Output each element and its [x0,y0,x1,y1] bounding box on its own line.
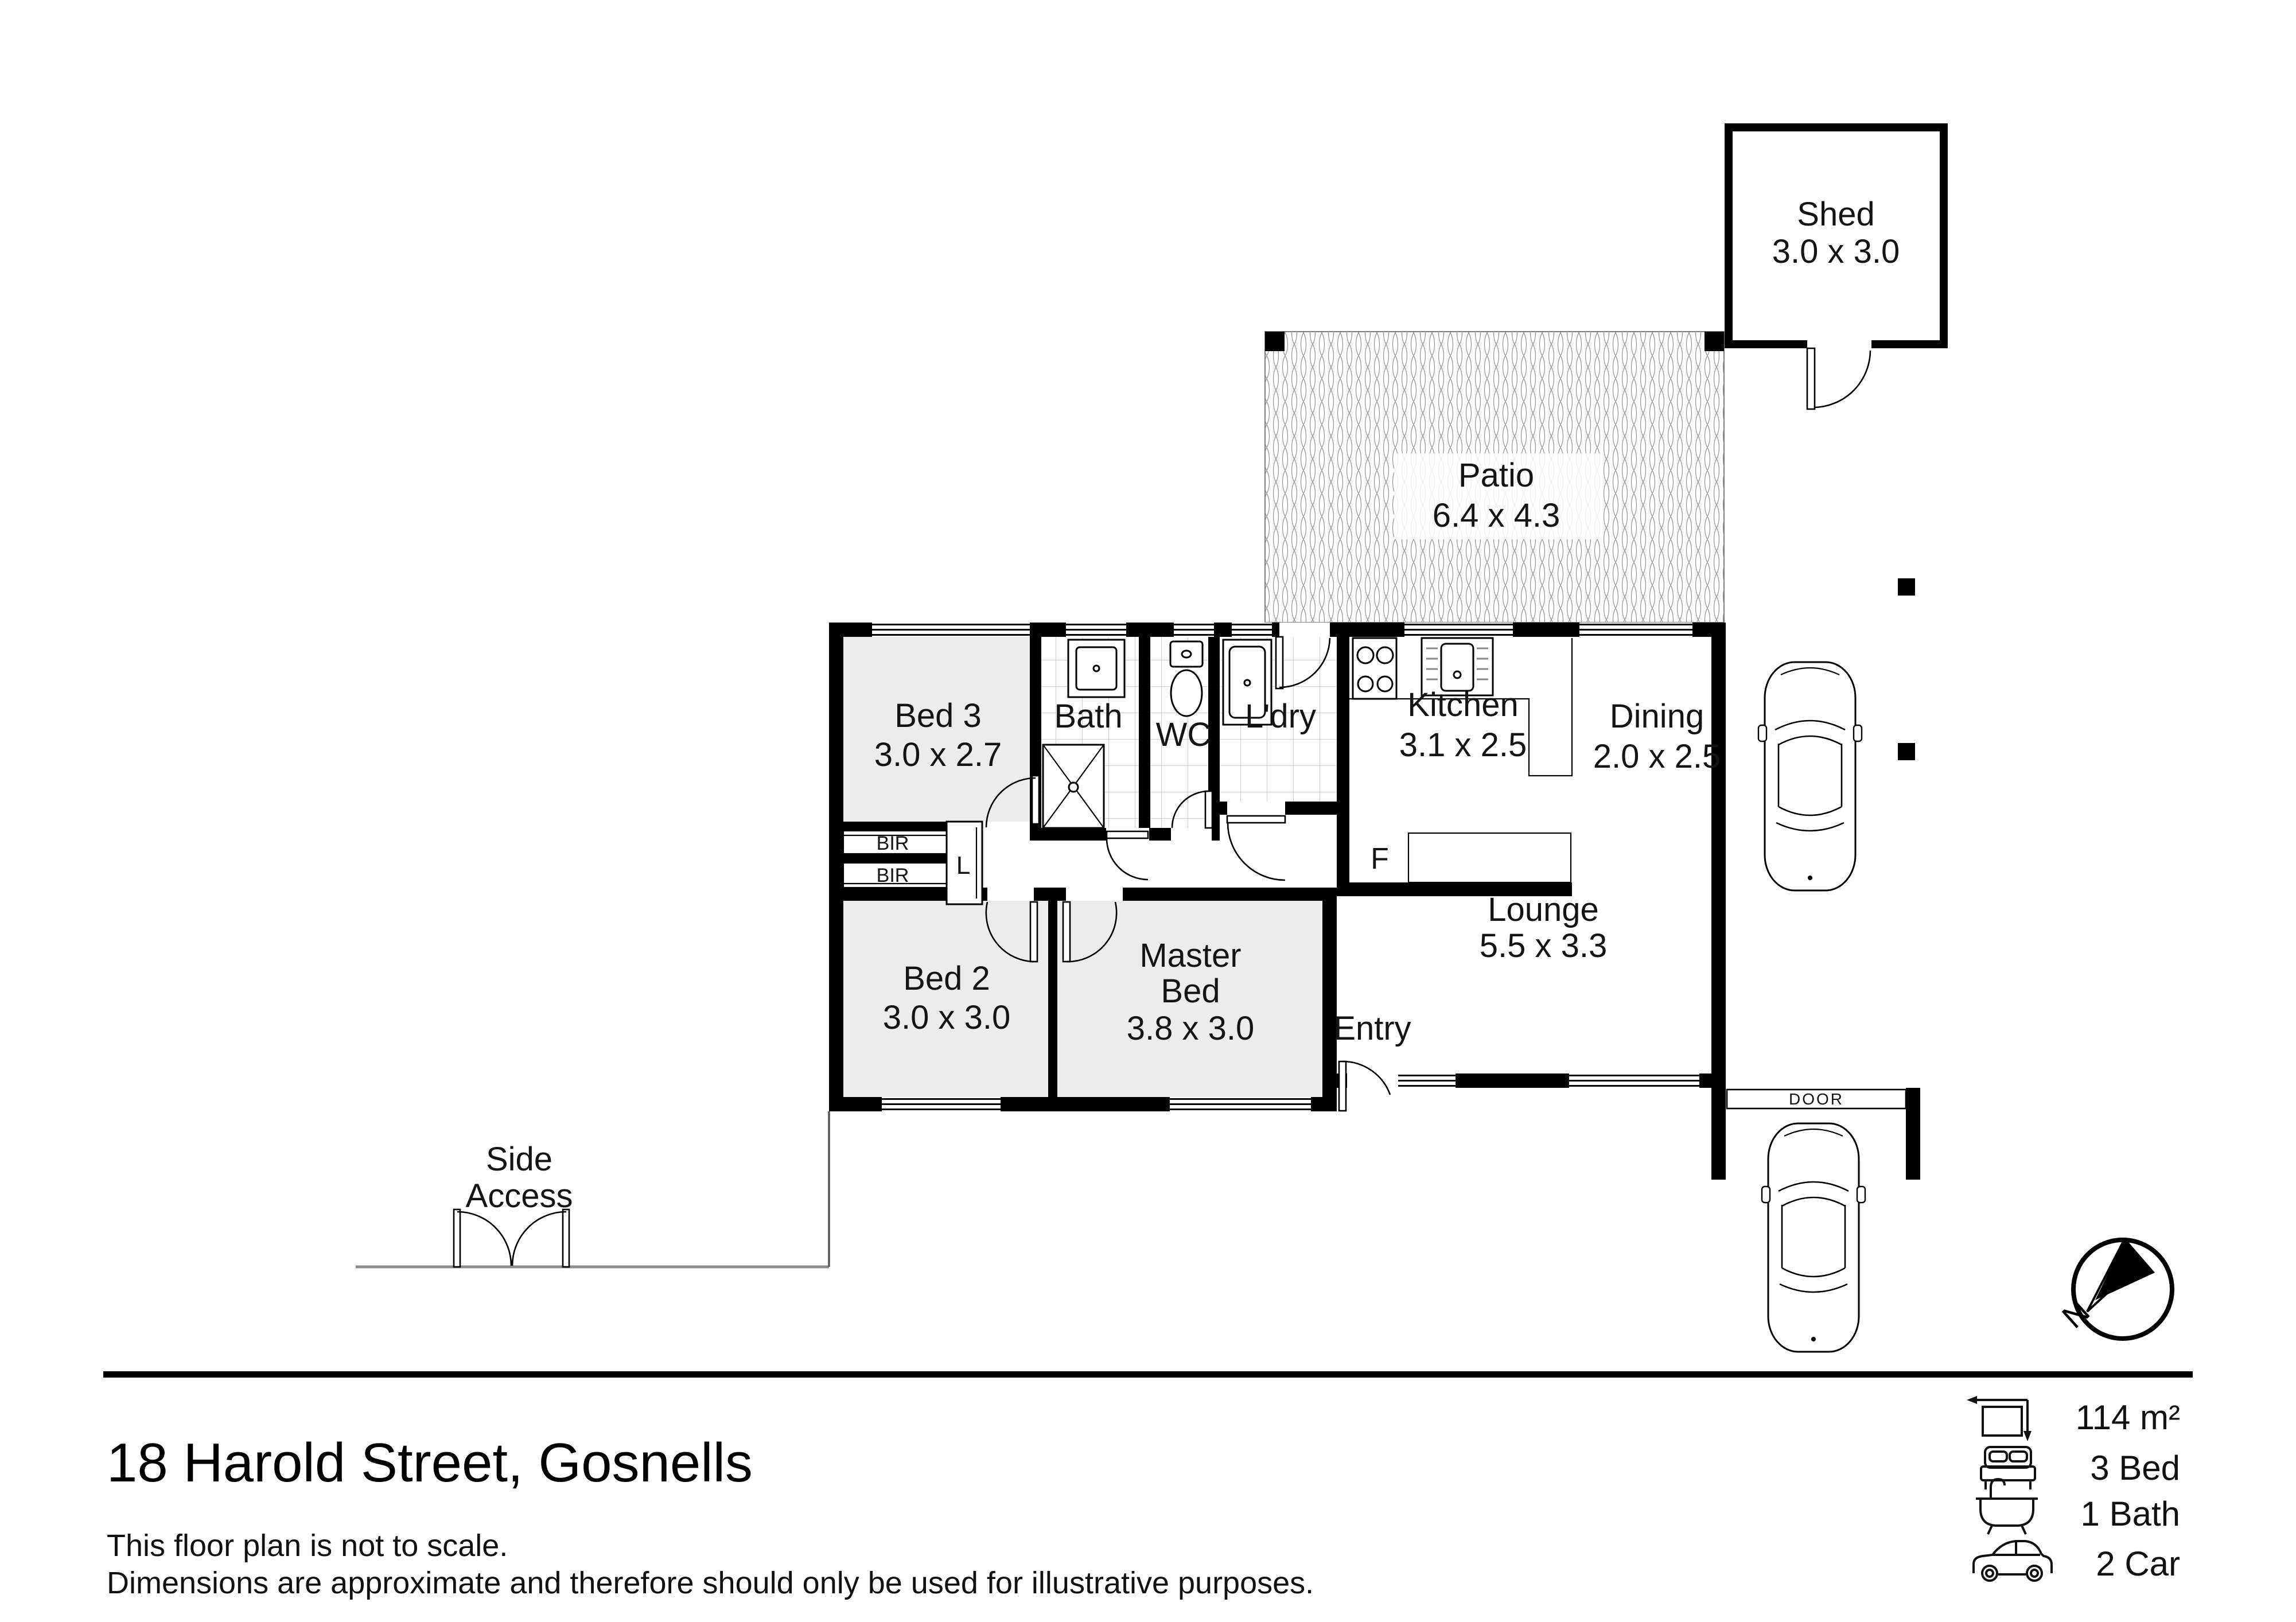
site-boundary [356,1111,829,1267]
carport-post [1898,743,1915,760]
kitchen-label: Kitchen [1407,686,1518,724]
car-top [1758,662,1862,890]
fridge-label: F [1371,842,1389,876]
patio-dims: 6.4 x 4.3 [1433,497,1560,534]
kitchen-dims: 3.1 x 2.5 [1399,726,1527,764]
bed3-label: Bed 3 [894,697,982,734]
stat-bath: 1 Bath [1976,1479,2180,1534]
patio-post [1705,332,1724,351]
bed3-dims: 3.0 x 2.7 [874,736,1002,773]
bed2-label: Bed 2 [903,960,990,997]
disclaimer-line1: This floor plan is not to scale. [107,1528,508,1563]
car-icon [1974,1541,2052,1581]
footer-rule [103,1371,2193,1378]
shed-label: Shed [1797,196,1874,233]
page-title: 18 Harold Street, Gosnells [107,1432,753,1493]
bir1-label: BIR [877,833,909,854]
car-bottom [1762,1123,1865,1352]
stat-bed: 3 Bed [1981,1447,2180,1489]
stat-car-label: 2 Car [2096,1545,2180,1583]
stat-bed-label: 3 Bed [2090,1449,2180,1487]
shed: Shed 3.0 x 3.0 [1725,123,1948,409]
toilet [1171,670,1202,716]
patio-label: Patio [1458,457,1534,494]
wc-fixtures [1170,641,1203,716]
bed-icon [1981,1447,2035,1489]
laundry-label: L'dry [1245,698,1316,735]
compass-icon: N [2055,1238,2172,1339]
side-access-label-line2: Access [466,1177,573,1215]
wc-label: WC [1156,716,1212,753]
lounge-label: Lounge [1488,891,1599,928]
carport-post [1898,578,1915,596]
bath-label: Bath [1054,698,1122,735]
stat-area: 114 m² [1967,1396,2180,1441]
garage-door-label: DOOR [1789,1090,1844,1108]
master-dims: 3.8 x 3.0 [1127,1010,1254,1047]
dining-label: Dining [1610,698,1704,735]
kitchen-bench [1408,833,1571,882]
floorplan-canvas: Side Access Shed 3.0 x 3.0 Patio 6.4 x 4… [0,0,2296,1622]
side-access-label-line1: Side [486,1141,552,1178]
carport [1727,662,1906,1352]
entry-label: Entry [1333,1010,1411,1047]
shed-dims: 3.0 x 3.0 [1772,233,1900,270]
patio-post [1265,332,1285,351]
linen-label: L [956,851,970,880]
floorplan-page: Side Access Shed 3.0 x 3.0 Patio 6.4 x 4… [0,0,2296,1622]
stat-bath-label: 1 Bath [2081,1495,2180,1533]
bir2-label: BIR [877,865,909,886]
area-icon [1967,1396,2032,1441]
bed2-dims: 3.0 x 3.0 [883,999,1010,1036]
patio: Patio 6.4 x 4.3 [1265,332,1724,623]
master-label-line1: Master [1139,937,1241,974]
lounge-dims: 5.5 x 3.3 [1480,927,1607,964]
side-access-gate [454,1209,569,1267]
stat-car: 2 Car [1974,1541,2180,1583]
master-label-line2: Bed [1161,973,1220,1010]
disclaimer-line2: Dimensions are approximate and therefore… [107,1566,1314,1600]
dining-dims: 2.0 x 2.5 [1593,738,1721,775]
stat-area-label: 114 m² [2076,1398,2180,1437]
